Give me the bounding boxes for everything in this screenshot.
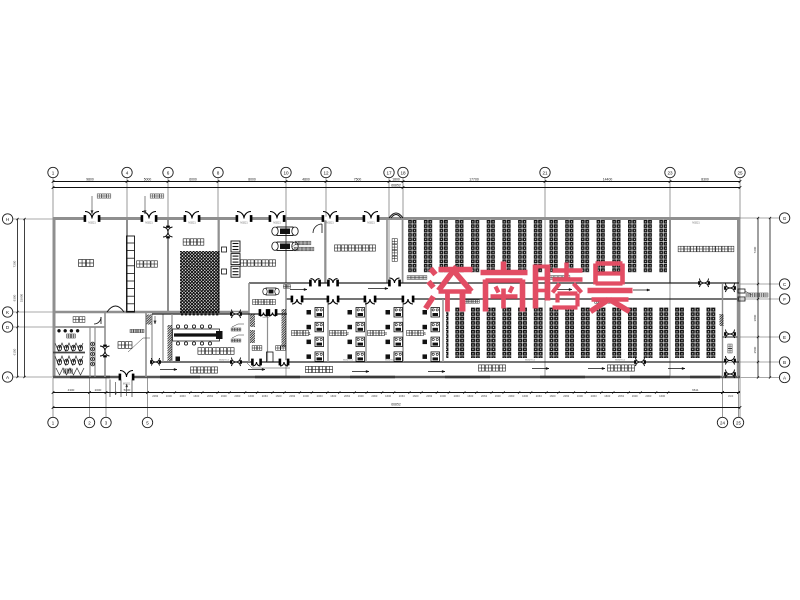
- svg-text:3800: 3800: [753, 314, 757, 321]
- svg-text:M1521: M1521: [240, 222, 248, 225]
- svg-text:M1B2TC2: M1B2TC2: [525, 360, 536, 362]
- svg-text:25: 25: [737, 170, 743, 175]
- svg-text:M1521: M1521: [188, 222, 196, 225]
- svg-text:2063: 2063: [563, 394, 569, 398]
- svg-text:1600: 1600: [303, 394, 309, 398]
- svg-text:M1B2TC2: M1B2TC2: [219, 360, 230, 362]
- svg-text:2063: 2063: [289, 394, 295, 398]
- svg-text:1600: 1600: [495, 394, 501, 398]
- svg-text:1800: 1800: [392, 177, 400, 181]
- svg-text:2500: 2500: [753, 346, 757, 353]
- svg-text:1600: 1600: [577, 394, 583, 398]
- svg-text:2063: 2063: [344, 394, 350, 398]
- svg-text:4: 4: [423, 331, 426, 336]
- svg-text:1600: 1600: [166, 394, 172, 398]
- svg-text:2000: 2000: [95, 388, 102, 392]
- svg-text:8: 8: [217, 170, 220, 175]
- svg-text:1600: 1600: [193, 394, 199, 398]
- svg-text:1600: 1600: [440, 394, 446, 398]
- svg-text:6611: 6611: [692, 388, 699, 392]
- svg-text:25: 25: [736, 420, 741, 425]
- svg-text:9800: 9800: [86, 177, 94, 181]
- svg-text:M1521: M1521: [326, 222, 334, 225]
- svg-text:2063: 2063: [180, 394, 186, 398]
- svg-text:1600: 1600: [385, 394, 391, 398]
- svg-text:21: 21: [542, 170, 548, 175]
- svg-text:1600: 1600: [330, 394, 336, 398]
- svg-text:7500: 7500: [354, 177, 362, 181]
- svg-text:1600: 1600: [659, 394, 665, 398]
- svg-text:2063: 2063: [536, 394, 542, 398]
- svg-text:2063: 2063: [591, 394, 597, 398]
- svg-text:23: 23: [667, 170, 673, 175]
- svg-text:66852: 66852: [391, 183, 401, 187]
- svg-text:H: H: [6, 217, 9, 222]
- svg-text:3: 3: [384, 331, 387, 336]
- svg-text:8300: 8300: [701, 177, 709, 181]
- svg-text:24: 24: [720, 420, 725, 425]
- svg-text:M1B2TC2: M1B2TC2: [615, 360, 626, 362]
- svg-text:M0921: M0921: [263, 317, 270, 319]
- svg-text:1: 1: [52, 170, 55, 175]
- svg-text:5000: 5000: [144, 177, 152, 181]
- svg-text:2063: 2063: [481, 394, 487, 398]
- svg-text:1600: 1600: [358, 394, 364, 398]
- svg-text:17: 17: [386, 170, 392, 175]
- svg-text:2063: 2063: [262, 394, 268, 398]
- svg-text:1600: 1600: [248, 394, 254, 398]
- svg-text:2063: 2063: [207, 394, 213, 398]
- svg-text:B: B: [783, 360, 786, 365]
- svg-text:66852: 66852: [391, 403, 401, 407]
- svg-text:1: 1: [308, 331, 311, 336]
- svg-text:E: E: [783, 335, 786, 340]
- svg-text:2063: 2063: [152, 394, 158, 398]
- svg-text:M1521: M1521: [145, 222, 153, 225]
- svg-text:2063: 2063: [454, 394, 460, 398]
- svg-text:1600: 1600: [413, 394, 419, 398]
- svg-text:M1521: M1521: [367, 222, 375, 225]
- svg-text:1600: 1600: [276, 394, 282, 398]
- svg-text:M1521: M1521: [273, 222, 281, 225]
- svg-text:6000: 6000: [189, 177, 197, 181]
- svg-text:12: 12: [323, 170, 329, 175]
- svg-text:6150: 6150: [13, 348, 17, 355]
- svg-text:M1521: M1521: [692, 222, 700, 225]
- svg-text:4: 4: [126, 170, 129, 175]
- svg-text:M1B2TC2: M1B2TC2: [385, 360, 396, 362]
- svg-text:M1B2TC2: M1B2TC2: [343, 360, 354, 362]
- svg-text:2063: 2063: [426, 394, 432, 398]
- svg-text:5000: 5000: [124, 388, 131, 392]
- svg-text:1600: 1600: [522, 394, 528, 398]
- svg-text:6: 6: [167, 170, 170, 175]
- svg-text:9300: 9300: [13, 294, 17, 301]
- svg-text:7200: 7200: [753, 246, 757, 253]
- svg-text:M1521: M1521: [88, 222, 96, 225]
- svg-text:4800: 4800: [302, 177, 310, 181]
- svg-text:4300: 4300: [68, 388, 75, 392]
- svg-text:1600: 1600: [632, 394, 638, 398]
- svg-text:8000: 8000: [248, 177, 256, 181]
- svg-text:2: 2: [346, 331, 349, 336]
- svg-text:2063: 2063: [371, 394, 377, 398]
- svg-text:18: 18: [400, 170, 406, 175]
- svg-text:F: F: [783, 297, 786, 302]
- svg-text:1600: 1600: [550, 394, 556, 398]
- svg-text:7200: 7200: [13, 260, 17, 267]
- svg-text:2063: 2063: [317, 394, 323, 398]
- svg-text:1600: 1600: [221, 394, 227, 398]
- svg-text:G: G: [783, 216, 787, 221]
- svg-text:14400: 14400: [603, 177, 613, 181]
- svg-text:1600: 1600: [604, 394, 610, 398]
- svg-text:17700: 17700: [469, 177, 479, 181]
- svg-text:2063: 2063: [618, 394, 624, 398]
- svg-text:2063: 2063: [399, 394, 405, 398]
- svg-text:10: 10: [283, 170, 289, 175]
- svg-text:2063: 2063: [508, 394, 514, 398]
- svg-text:1600: 1600: [467, 394, 473, 398]
- svg-text:2063: 2063: [234, 394, 240, 398]
- svg-text:2063: 2063: [645, 394, 651, 398]
- svg-text:15900: 15900: [20, 293, 24, 302]
- svg-text:1600: 1600: [728, 395, 734, 398]
- svg-text:M1821: M1821: [123, 383, 131, 386]
